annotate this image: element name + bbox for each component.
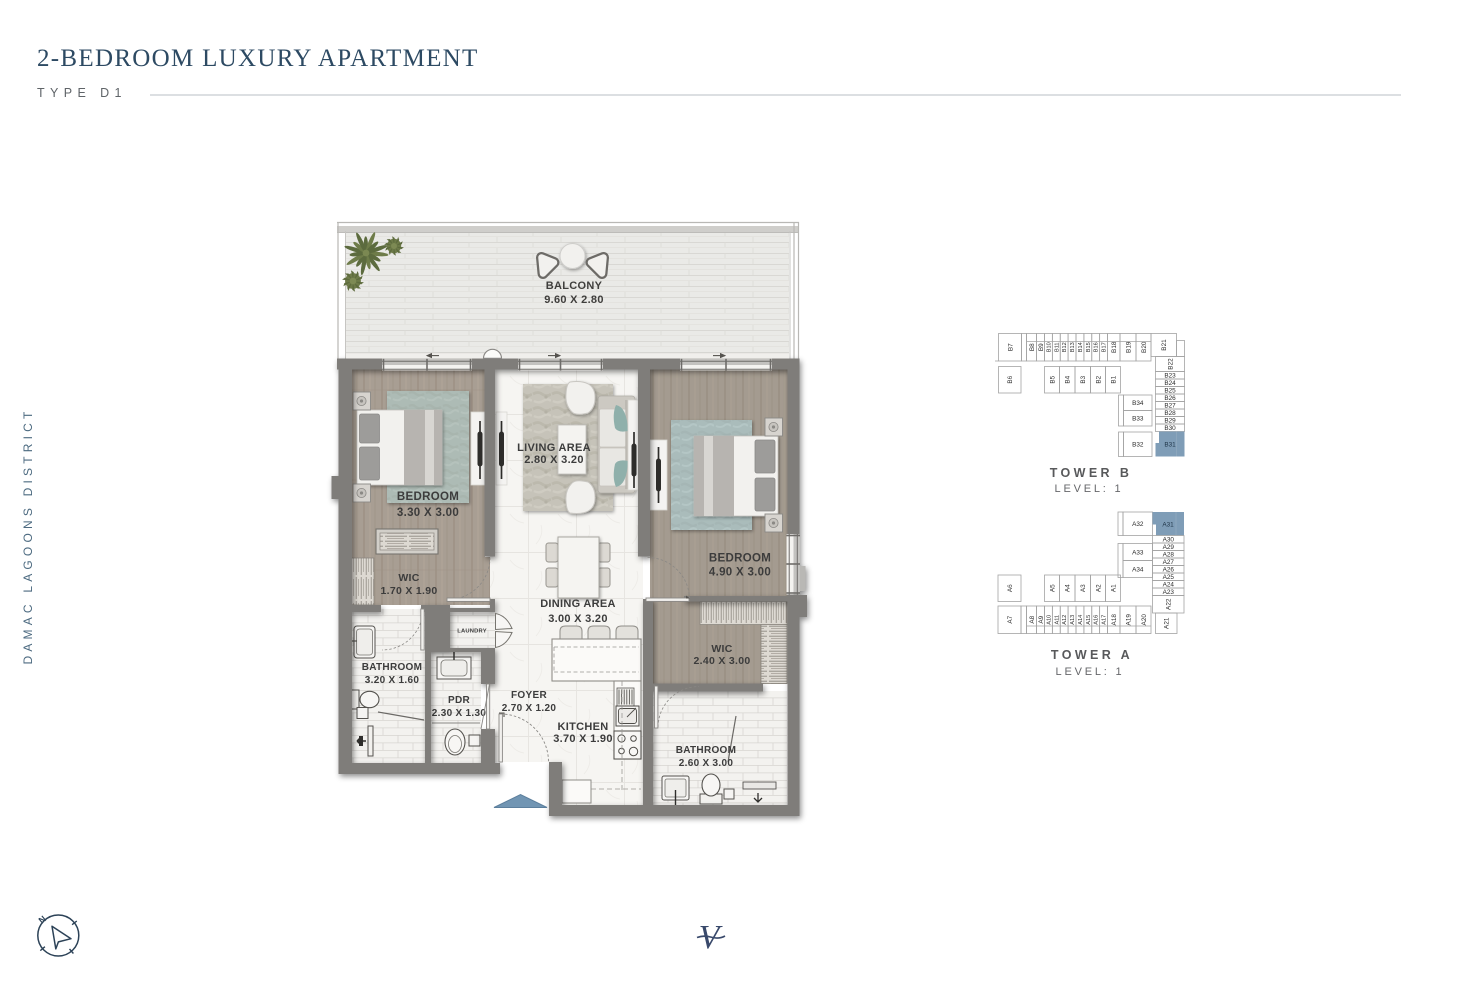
svg-text:A8: A8 xyxy=(1029,615,1036,623)
svg-text:4.90 X 3.00: 4.90 X 3.00 xyxy=(709,567,771,579)
svg-text:B15: B15 xyxy=(1086,342,1092,352)
svg-text:B19: B19 xyxy=(1125,341,1132,353)
svg-text:A21: A21 xyxy=(1164,617,1171,629)
svg-text:LEVEL: 1: LEVEL: 1 xyxy=(1056,666,1125,678)
svg-text:A5: A5 xyxy=(1049,584,1056,592)
svg-text:KITCHEN: KITCHEN xyxy=(558,721,609,733)
svg-text:BATHROOM: BATHROOM xyxy=(362,662,423,673)
svg-text:A12: A12 xyxy=(1062,615,1068,625)
svg-text:9.60 X 2.80: 9.60 X 2.80 xyxy=(544,294,604,306)
svg-text:B27: B27 xyxy=(1164,403,1176,410)
svg-text:3.70 X 1.90: 3.70 X 1.90 xyxy=(553,733,613,745)
svg-text:B12: B12 xyxy=(1062,342,1068,352)
svg-text:A20: A20 xyxy=(1141,614,1148,626)
svg-text:B17: B17 xyxy=(1102,342,1108,352)
svg-text:B34: B34 xyxy=(1132,400,1144,407)
svg-text:A34: A34 xyxy=(1132,566,1144,573)
svg-text:A19: A19 xyxy=(1125,614,1132,626)
svg-text:B26: B26 xyxy=(1164,395,1176,402)
svg-text:TYPE D1: TYPE D1 xyxy=(37,86,127,100)
svg-text:WIC: WIC xyxy=(711,643,732,655)
svg-text:B24: B24 xyxy=(1164,380,1176,387)
svg-text:B4: B4 xyxy=(1065,375,1072,383)
svg-text:B22: B22 xyxy=(1167,358,1174,370)
svg-text:B29: B29 xyxy=(1164,418,1176,425)
svg-text:A31: A31 xyxy=(1162,522,1174,529)
svg-text:A3: A3 xyxy=(1080,584,1087,592)
svg-text:PDR: PDR xyxy=(448,695,470,706)
svg-text:A1: A1 xyxy=(1110,584,1117,592)
svg-text:B14: B14 xyxy=(1078,342,1084,352)
svg-text:LAUNDRY: LAUNDRY xyxy=(457,629,487,635)
svg-text:B6: B6 xyxy=(1007,375,1014,383)
svg-text:2.30 X 1.30: 2.30 X 1.30 xyxy=(432,708,487,719)
svg-text:BEDROOM: BEDROOM xyxy=(709,553,771,565)
svg-text:A14: A14 xyxy=(1078,615,1084,625)
svg-text:3.00 X 3.20: 3.00 X 3.20 xyxy=(548,613,608,625)
svg-text:2.40 X 3.00: 2.40 X 3.00 xyxy=(693,655,750,667)
svg-text:B5: B5 xyxy=(1049,375,1056,383)
svg-text:A17: A17 xyxy=(1102,615,1108,625)
svg-text:DAMAC LAGOONS DISTRICT: DAMAC LAGOONS DISTRICT xyxy=(21,407,35,664)
svg-text:B3: B3 xyxy=(1080,375,1087,383)
svg-text:B25: B25 xyxy=(1164,388,1176,395)
svg-text:A27: A27 xyxy=(1163,559,1175,566)
svg-text:BALCONY: BALCONY xyxy=(546,280,603,292)
svg-text:3.30 X 3.00: 3.30 X 3.00 xyxy=(397,507,459,519)
svg-text:B30: B30 xyxy=(1164,425,1176,432)
svg-text:2.80 X 3.20: 2.80 X 3.20 xyxy=(524,454,584,466)
svg-text:A13: A13 xyxy=(1070,615,1076,625)
svg-text:B31: B31 xyxy=(1164,442,1176,449)
svg-text:B33: B33 xyxy=(1132,416,1144,423)
svg-text:B23: B23 xyxy=(1164,373,1176,380)
svg-text:A10: A10 xyxy=(1046,615,1052,625)
svg-text:A22: A22 xyxy=(1166,598,1173,610)
svg-text:A33: A33 xyxy=(1132,549,1144,556)
svg-text:B18: B18 xyxy=(1111,341,1118,353)
svg-text:A16: A16 xyxy=(1094,615,1100,625)
svg-text:3.20 X 1.60: 3.20 X 1.60 xyxy=(365,675,420,686)
svg-text:TOWER A: TOWER A xyxy=(1051,648,1133,662)
svg-text:A25: A25 xyxy=(1163,574,1175,581)
svg-text:A32: A32 xyxy=(1132,521,1144,528)
svg-text:2.60 X 3.00: 2.60 X 3.00 xyxy=(679,758,734,769)
svg-text:DINING AREA: DINING AREA xyxy=(540,598,616,610)
svg-text:A18: A18 xyxy=(1111,614,1118,626)
svg-text:A6: A6 xyxy=(1007,584,1014,592)
svg-text:A2: A2 xyxy=(1095,584,1102,592)
svg-text:A29: A29 xyxy=(1163,544,1175,551)
svg-text:B10: B10 xyxy=(1046,342,1052,352)
svg-text:A4: A4 xyxy=(1065,584,1072,592)
svg-text:2.70 X 1.20: 2.70 X 1.20 xyxy=(502,703,557,714)
svg-text:A24: A24 xyxy=(1163,582,1175,589)
svg-text:B13: B13 xyxy=(1070,342,1076,352)
svg-text:WIC: WIC xyxy=(398,572,419,584)
svg-text:LIVING AREA: LIVING AREA xyxy=(517,442,591,454)
svg-text:B1: B1 xyxy=(1110,375,1117,383)
svg-text:B28: B28 xyxy=(1164,410,1176,417)
svg-text:B16: B16 xyxy=(1094,342,1100,352)
svg-text:A15: A15 xyxy=(1086,615,1092,625)
svg-text:B11: B11 xyxy=(1054,342,1060,352)
svg-text:A30: A30 xyxy=(1163,537,1175,544)
svg-text:B8: B8 xyxy=(1029,343,1036,351)
svg-text:TOWER B: TOWER B xyxy=(1050,466,1133,480)
svg-text:FOYER: FOYER xyxy=(511,690,547,701)
svg-text:A11: A11 xyxy=(1054,615,1060,625)
svg-text:1.70 X 1.90: 1.70 X 1.90 xyxy=(380,585,437,597)
svg-text:B2: B2 xyxy=(1095,375,1102,383)
svg-text:A9: A9 xyxy=(1038,615,1045,623)
svg-text:2-BEDROOM LUXURY APARTMENT: 2-BEDROOM LUXURY APARTMENT xyxy=(37,45,479,72)
svg-text:B21: B21 xyxy=(1161,339,1168,351)
svg-text:A7: A7 xyxy=(1007,615,1014,623)
svg-text:B32: B32 xyxy=(1132,442,1144,449)
svg-text:B7: B7 xyxy=(1007,343,1014,351)
svg-text:BATHROOM: BATHROOM xyxy=(676,745,737,756)
svg-text:LEVEL: 1: LEVEL: 1 xyxy=(1055,483,1124,495)
svg-text:B9: B9 xyxy=(1038,343,1045,351)
svg-text:A28: A28 xyxy=(1163,552,1175,559)
svg-text:A23: A23 xyxy=(1163,589,1175,596)
svg-text:BEDROOM: BEDROOM xyxy=(397,491,459,503)
svg-text:A26: A26 xyxy=(1163,567,1175,574)
svg-text:B20: B20 xyxy=(1141,341,1148,353)
